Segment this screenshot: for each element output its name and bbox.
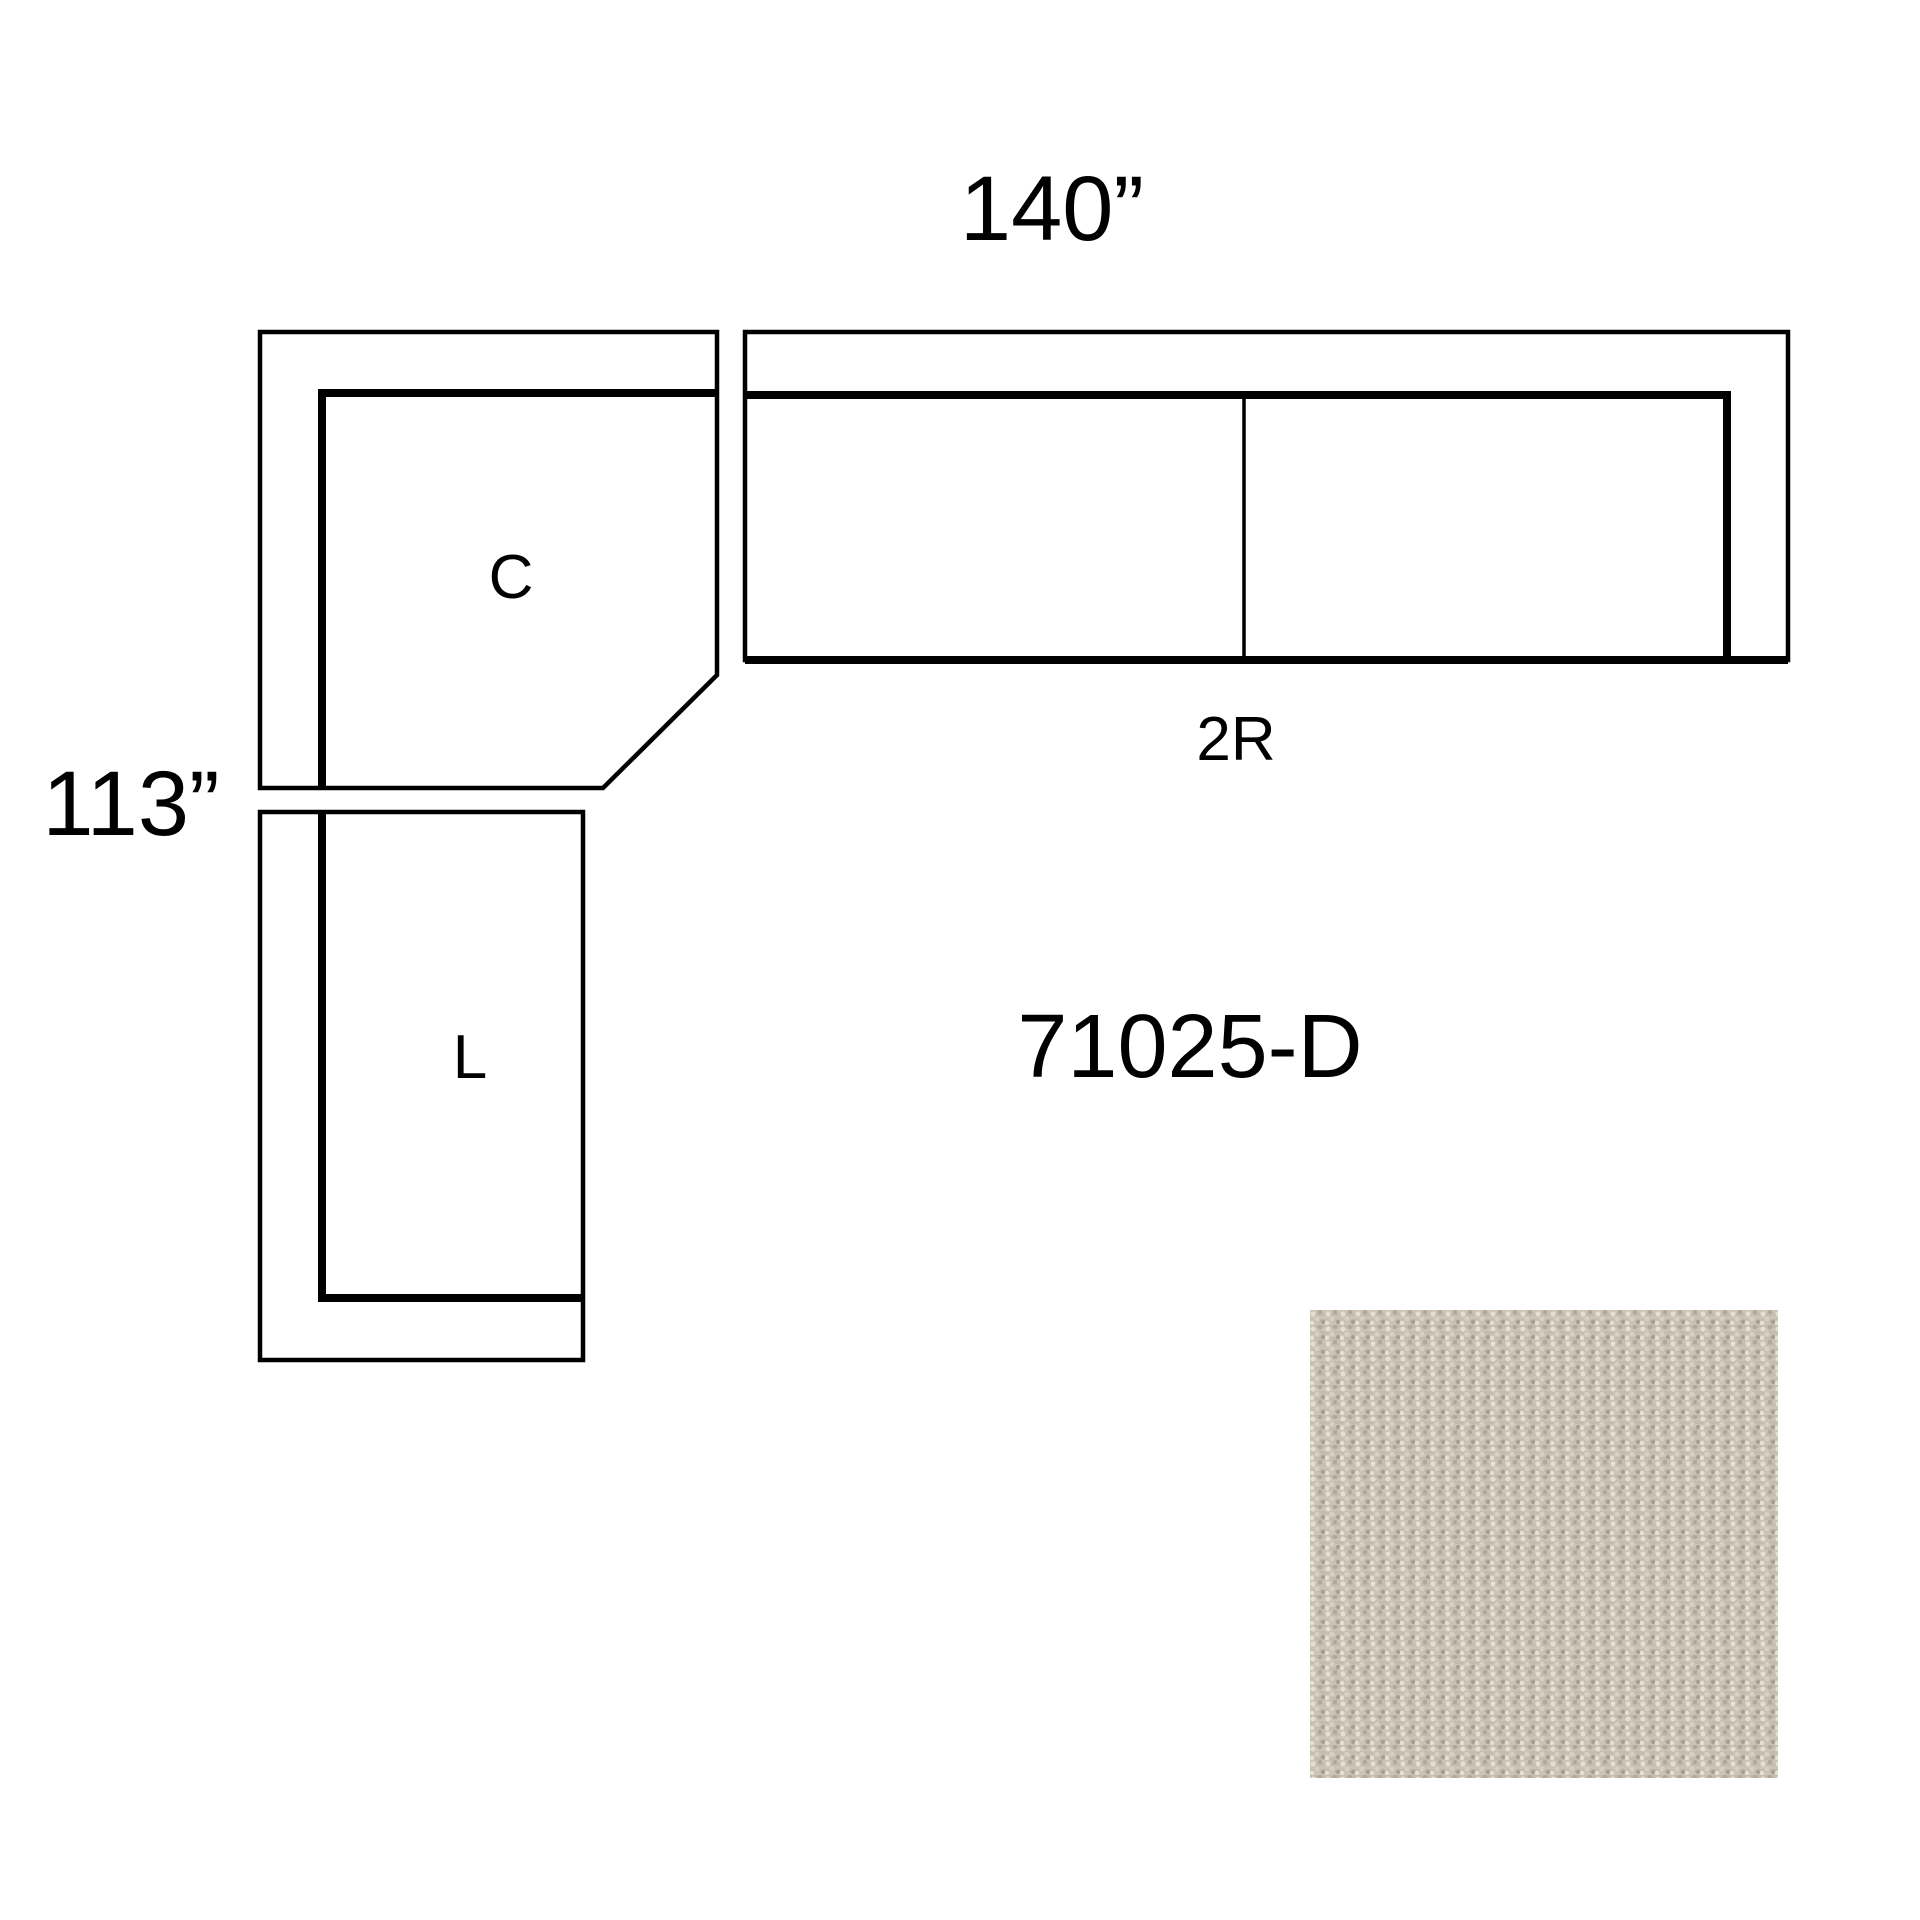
right-section-outline: [745, 332, 1788, 660]
sectional-spec-sheet: 140” 113” C L 2R 71025-D: [0, 0, 1920, 1920]
section-right-label: 2R: [1196, 705, 1275, 774]
model-number: 71025-D: [1017, 997, 1362, 1097]
width-dimension-label: 140”: [960, 158, 1144, 260]
left-section-outline: [260, 812, 583, 1360]
height-dimension-label: 113”: [42, 753, 219, 855]
fabric-swatch-image: [1310, 1310, 1778, 1778]
section-left-label: L: [453, 1023, 487, 1092]
section-corner-label: C: [489, 543, 534, 612]
right-section-seat-line: [745, 395, 1788, 660]
